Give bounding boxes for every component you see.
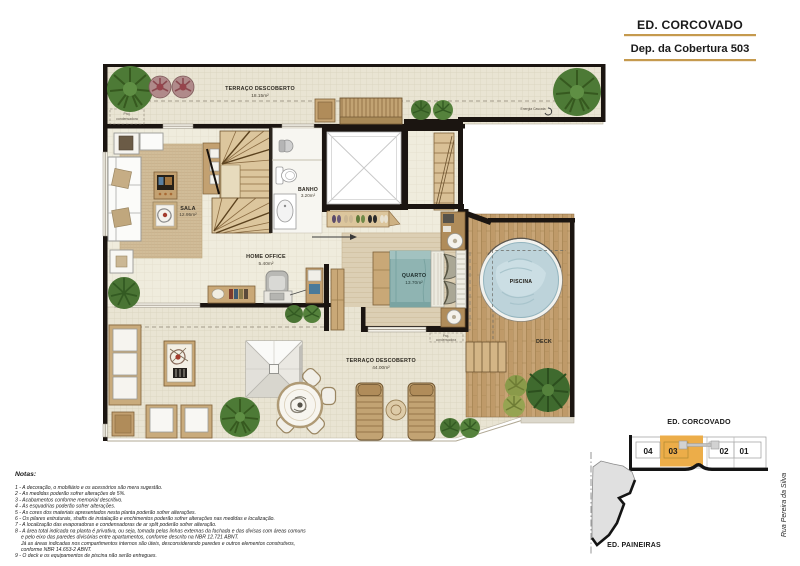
svg-text:PISCINA: PISCINA bbox=[510, 279, 532, 285]
svg-text:7 - A localização das evaporad: 7 - A localização das evaporadoras e con… bbox=[15, 522, 217, 528]
svg-text:ED. CORCOVADO: ED. CORCOVADO bbox=[667, 417, 731, 426]
svg-text:DECK: DECK bbox=[536, 339, 552, 345]
svg-text:Já as áreas indicadas nos comp: Já as áreas indicadas nos compartimentos… bbox=[20, 541, 295, 547]
svg-text:e pelo eixo das paredes divisó: e pelo eixo das paredes divisórias entre… bbox=[21, 535, 239, 541]
svg-text:Notas:: Notas: bbox=[15, 471, 36, 478]
svg-text:8 - A área total indicada na p: 8 - A área total indicada na planta é pr… bbox=[15, 528, 306, 534]
svg-text:Dep. da Cobertura 503: Dep. da Cobertura 503 bbox=[631, 43, 750, 55]
svg-text:TERRAÇO DESCOBERTO: TERRAÇO DESCOBERTO bbox=[346, 358, 416, 364]
svg-text:01: 01 bbox=[739, 447, 749, 456]
svg-text:QUARTO: QUARTO bbox=[402, 273, 426, 279]
svg-text:9 - O deck e os equipamentos d: 9 - O deck e os equipamentos de piscina … bbox=[15, 553, 157, 559]
svg-text:04: 04 bbox=[643, 447, 653, 456]
svg-text:Proj.: Proj. bbox=[124, 112, 131, 116]
svg-text:5 - As cores dos materiais apr: 5 - As cores dos materiais apresentados … bbox=[15, 510, 196, 516]
svg-text:condensadora: condensadora bbox=[116, 117, 138, 121]
svg-text:02: 02 bbox=[719, 447, 729, 456]
svg-text:03: 03 bbox=[668, 447, 678, 456]
svg-text:TERRAÇO DESCOBERTO: TERRAÇO DESCOBERTO bbox=[225, 86, 295, 92]
svg-text:condensadora: condensadora bbox=[436, 338, 456, 342]
svg-text:1 - A decoração, o mobiliário: 1 - A decoração, o mobiliário e os acess… bbox=[15, 485, 162, 491]
svg-text:5.40m²: 5.40m² bbox=[259, 261, 274, 267]
svg-text:3.20m²: 3.20m² bbox=[301, 193, 316, 198]
svg-text:6 - Os pilares estruturais, sh: 6 - Os pilares estruturais, shafts de in… bbox=[15, 516, 275, 522]
svg-text:Rua Pereira da Silva: Rua Pereira da Silva bbox=[781, 473, 788, 537]
svg-text:18.15m²: 18.15m² bbox=[251, 93, 269, 99]
svg-text:HOME OFFICE: HOME OFFICE bbox=[246, 254, 286, 260]
svg-text:ED. PAINEIRAS: ED. PAINEIRAS bbox=[607, 542, 661, 549]
svg-text:12.95m²: 12.95m² bbox=[179, 212, 197, 218]
svg-text:Energia Cascata: Energia Cascata bbox=[520, 107, 545, 111]
svg-text:3 - Acabamentos conforme memor: 3 - Acabamentos conforme memorial descri… bbox=[15, 497, 123, 503]
svg-text:2 - As medidas poderão sofrer: 2 - As medidas poderão sofrer alterações… bbox=[14, 491, 126, 497]
svg-text:13.70m²: 13.70m² bbox=[405, 280, 423, 286]
svg-text:4 - As esquadrias poderão sofr: 4 - As esquadrias poderão sofrer alteraç… bbox=[15, 504, 115, 510]
svg-text:44.00m²: 44.00m² bbox=[372, 365, 390, 371]
svg-text:conforme NBR 14.653-2 ABNT.: conforme NBR 14.653-2 ABNT. bbox=[21, 547, 92, 553]
svg-text:ED. CORCOVADO: ED. CORCOVADO bbox=[637, 18, 743, 32]
svg-text:SALA: SALA bbox=[180, 206, 195, 212]
